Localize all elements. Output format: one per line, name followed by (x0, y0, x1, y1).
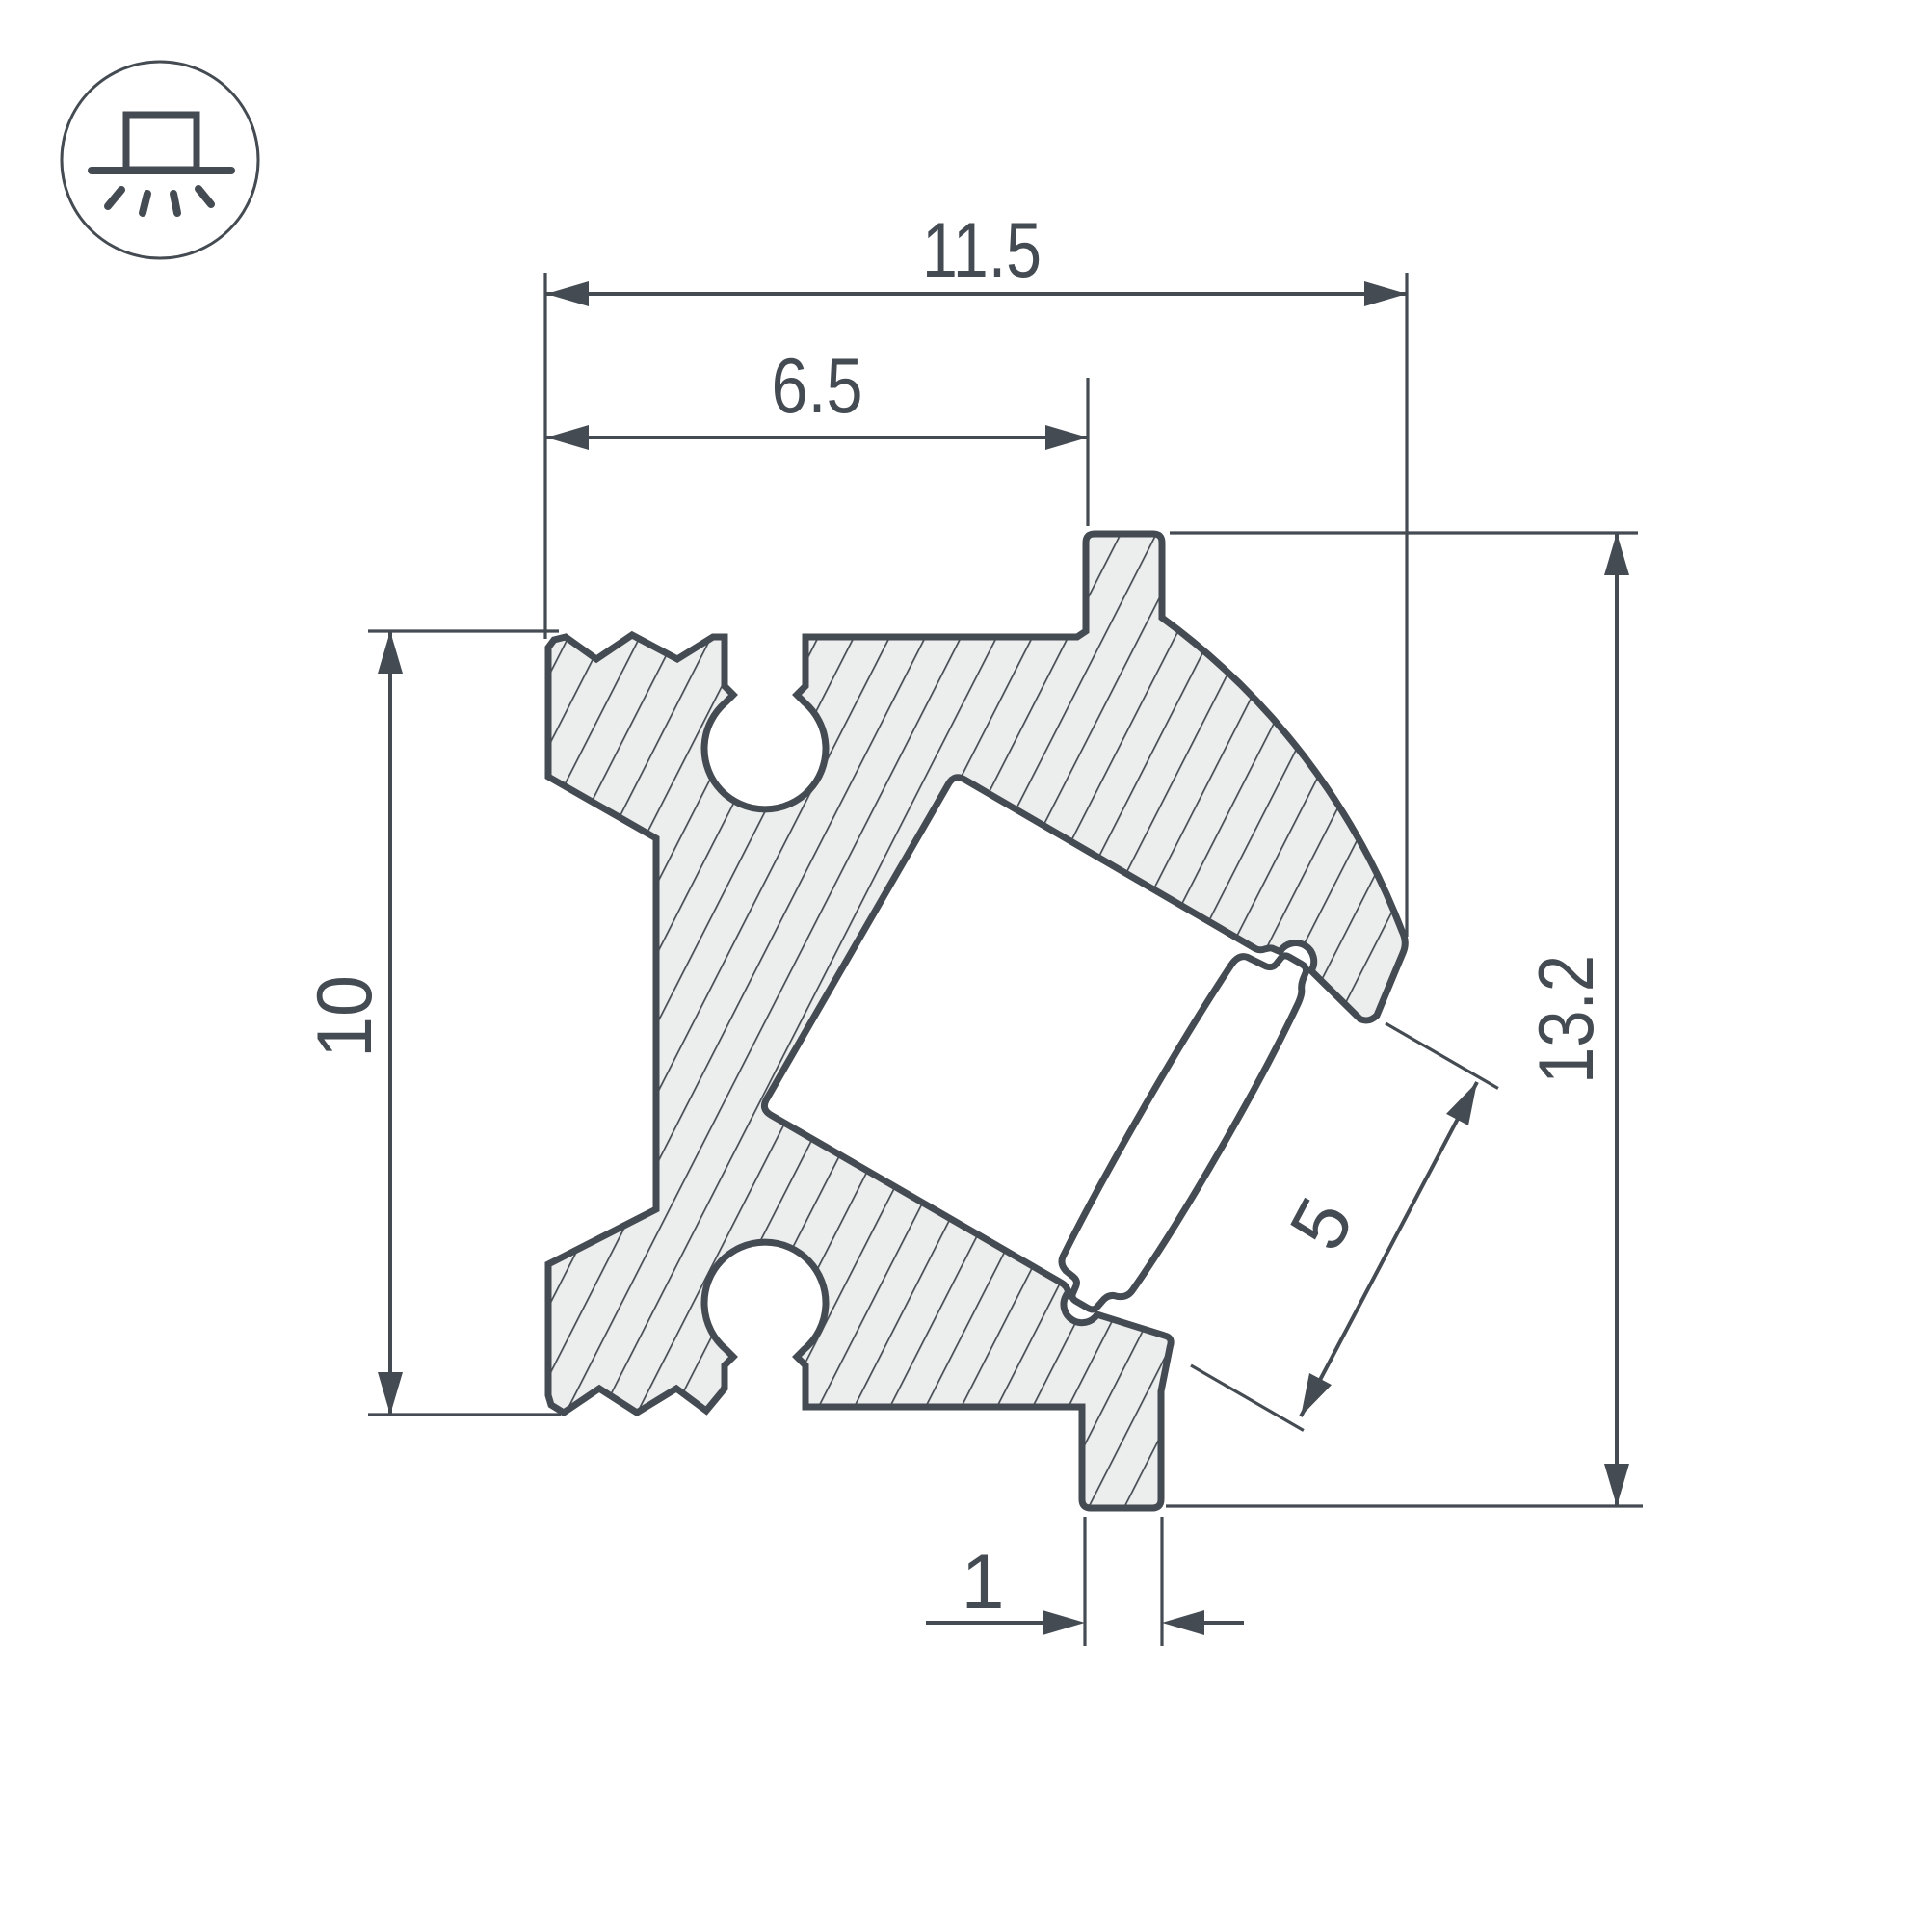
svg-text:13.2: 13.2 (1523, 955, 1610, 1084)
svg-text:11.5: 11.5 (922, 207, 1042, 294)
svg-text:1: 1 (961, 1539, 1004, 1626)
svg-text:10: 10 (302, 975, 388, 1058)
svg-text:6.5: 6.5 (772, 343, 863, 430)
